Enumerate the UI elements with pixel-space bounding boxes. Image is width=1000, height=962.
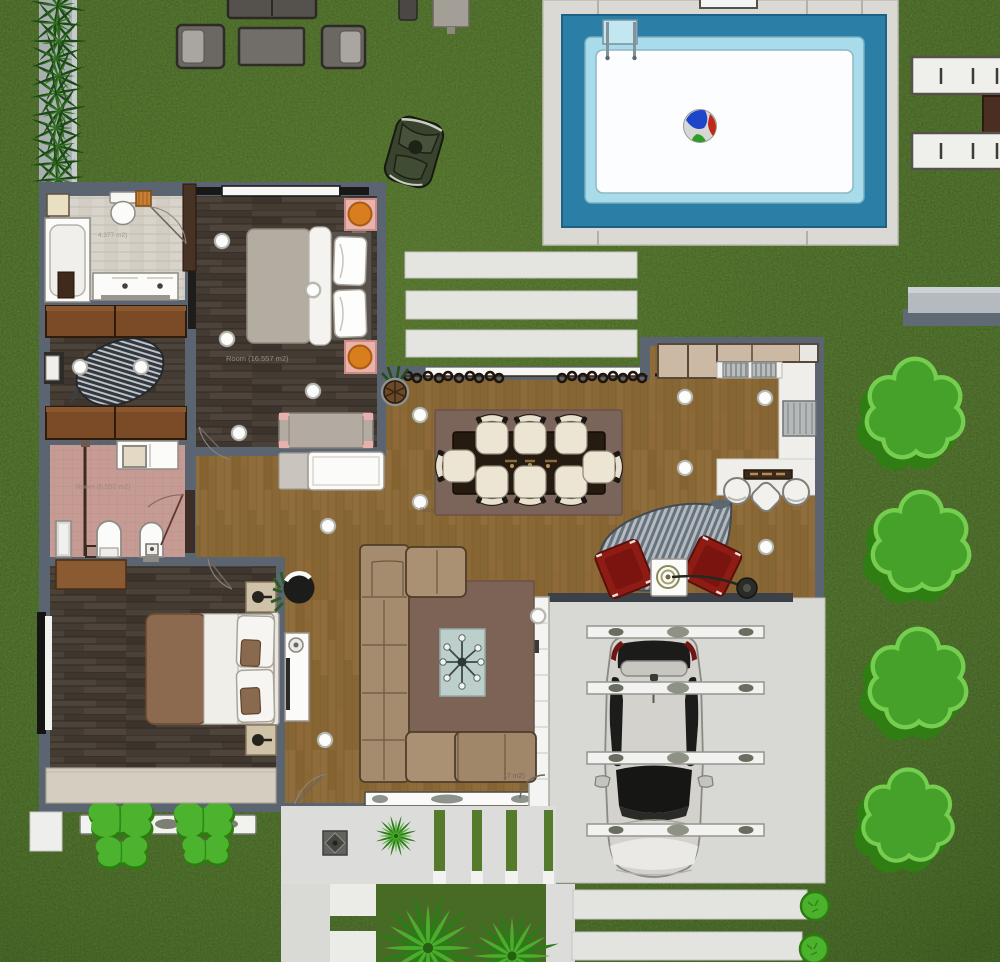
svg-text:Room: Room (420, 508, 436, 514)
svg-text:Room (16.557 m2): Room (16.557 m2) (226, 354, 289, 363)
svg-text:4.377 m2): 4.377 m2) (98, 232, 127, 239)
svg-text:17 m2): 17 m2) (503, 773, 525, 780)
svg-text:Room (6.552 m2): Room (6.552 m2) (76, 484, 130, 491)
